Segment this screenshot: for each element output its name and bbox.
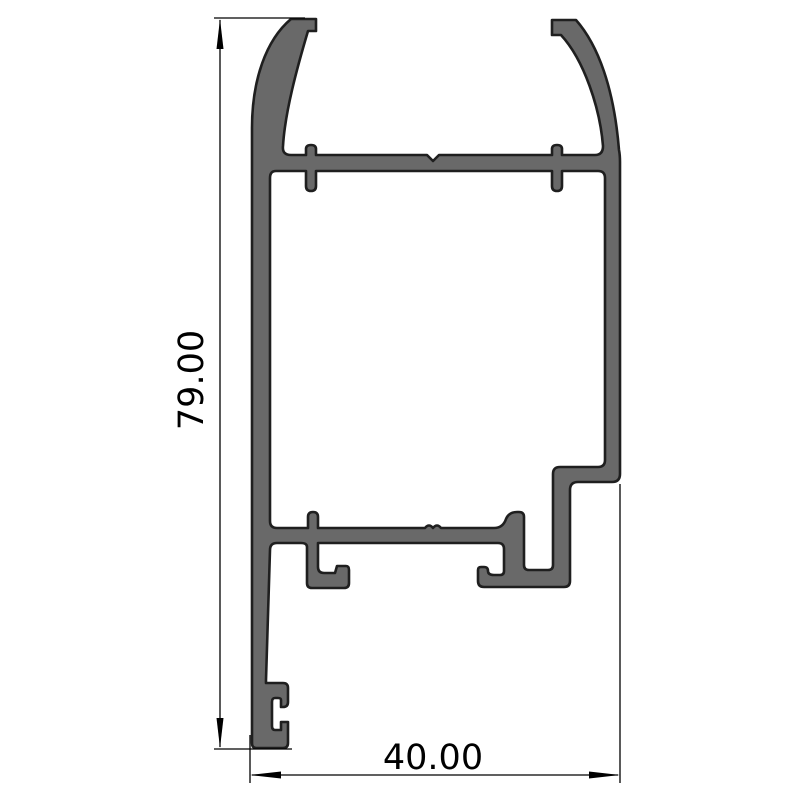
width-arrow-left-icon	[250, 772, 281, 779]
height-arrow-up-icon	[217, 19, 224, 49]
profile-cross-section	[252, 19, 620, 748]
height-dimension-label: 79.00	[172, 330, 212, 430]
technical-drawing-canvas: 79.00 40.00	[0, 0, 800, 800]
width-arrow-right-icon	[589, 772, 620, 779]
height-arrow-down-icon	[217, 718, 224, 748]
width-dimension-label: 40.00	[383, 738, 483, 778]
technical-drawing-page: 79.00 40.00	[0, 0, 800, 800]
